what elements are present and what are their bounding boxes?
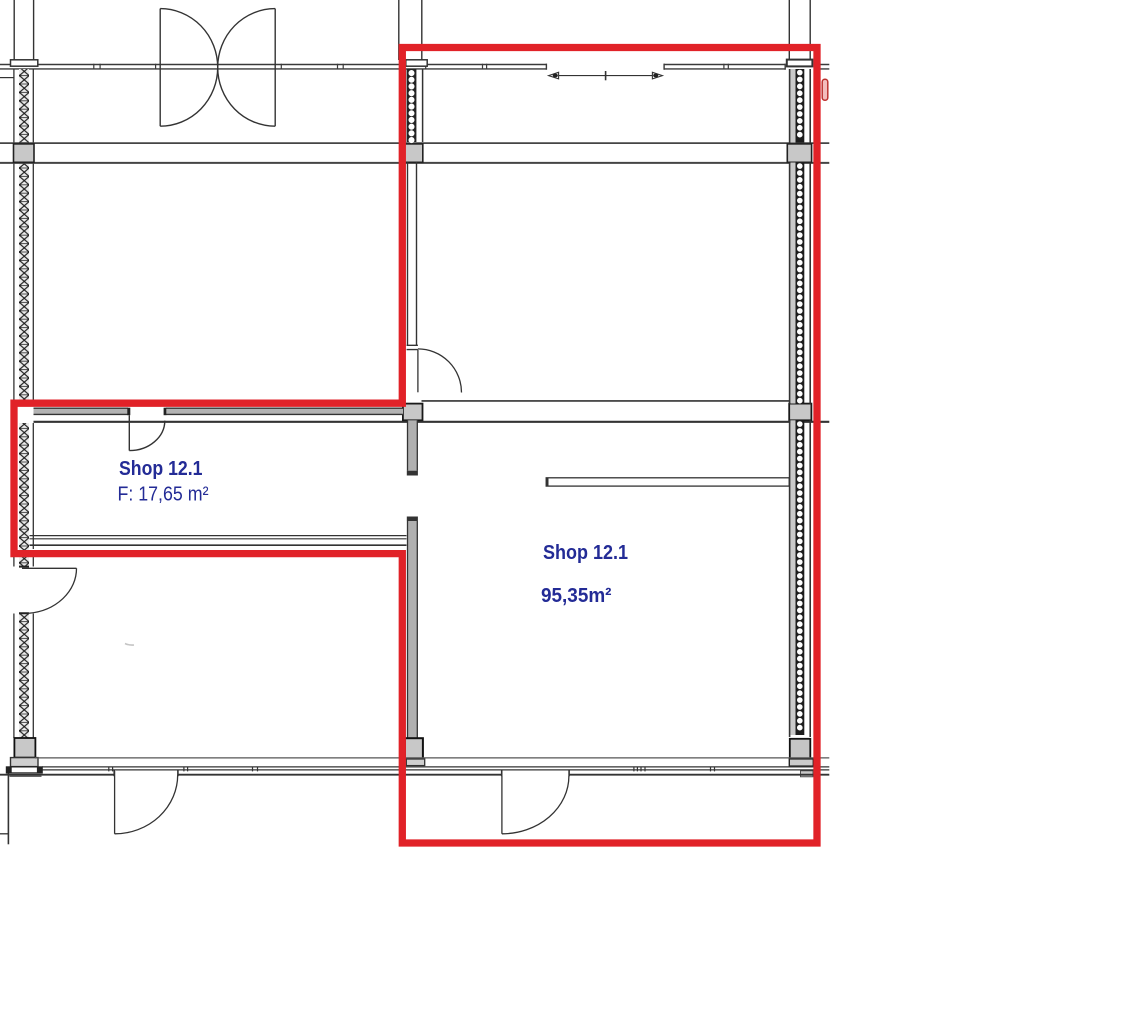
svg-text:Shop 12.1: Shop 12.1 xyxy=(543,542,628,564)
svg-text:Shop 12.1: Shop 12.1 xyxy=(119,458,203,480)
svg-text:95,35m²: 95,35m² xyxy=(541,585,612,607)
svg-text:F: 17,65 m²: F: 17,65 m² xyxy=(118,484,209,506)
